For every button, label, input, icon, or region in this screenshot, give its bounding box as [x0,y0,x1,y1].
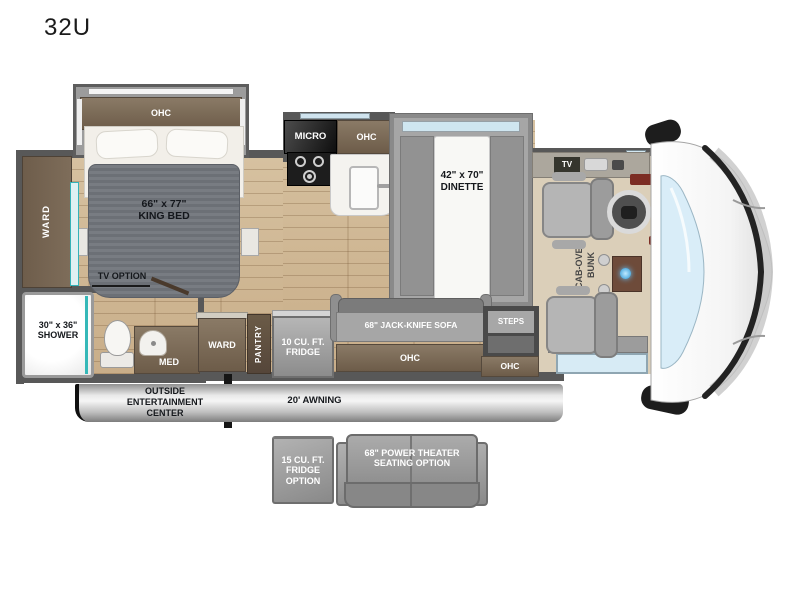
theater-option-label: 68" POWER THEATER SEATING OPTION [350,448,474,469]
theater-seat-seam [410,484,412,506]
shower-name: SHOWER [24,330,92,340]
model-title: 32U [44,14,91,42]
awning-label: 20' AWNING [262,396,367,407]
pillow-right [165,128,228,159]
bed-size: 66" x 77" [102,198,226,210]
fridge-line1: 10 CU. FT. [281,337,324,347]
tv-option-label: TV OPTION [88,271,156,281]
kitchen-sink [349,166,379,210]
oec-line2: ENTERTAINMENT [100,397,230,408]
shower-label: 30" x 36" SHOWER [24,320,92,341]
living-ward-cabinet: WARD [198,318,246,372]
nightstand-right [241,228,259,256]
fridge-line2: FRIDGE [286,347,320,357]
pillow-left [95,128,158,159]
dinette-window [402,121,520,132]
driver-armrest-top [552,172,586,181]
shower-size: 30" x 36" [24,320,92,330]
sofa-label: 68" JACK-KNIFE SOFA [340,321,482,331]
sofa-ohc-label: OHC [400,353,420,363]
king-bed-label: 66" x 77" KING BED [102,198,226,222]
kitchen-ohc-cabinet: OHC [337,120,396,154]
entry-ohc-cabinet: OHC [481,356,539,377]
driver-armrest-bottom [552,240,586,249]
fridge-option-line2: FRIDGE [286,465,320,475]
dinette-bench-left [400,136,434,296]
microwave: MICRO [284,120,337,154]
front-cap [615,58,795,423]
rv-floorplan: 32U OHC 66" x 77" KING BED WARD TV OPTIO… [0,0,800,600]
oec-line3: CENTER [100,408,230,419]
outside-entertainment-label: OUTSIDE ENTERTAINMENT CENTER [100,386,230,418]
theater-line2: SEATING OPTION [350,458,474,468]
steps-lower [488,336,534,353]
sofa-ohc-cabinet: OHC [336,344,484,372]
theater-line1: 68" POWER THEATER [350,448,474,458]
kitchen-ohc-label: OHC [357,132,377,142]
slide-wall-left [77,99,82,145]
ward-mirror [70,182,79,286]
tv-option-underline [92,285,150,287]
burner-left [295,156,306,167]
wall-top-mid [246,150,286,158]
kitchen-window [300,113,370,119]
fridge-option-line1: 15 CU. FT. [281,455,324,465]
passenger-seat [546,296,598,354]
cup-holder-top [598,254,610,266]
steps: STEPS [488,311,534,333]
dinette-bench-right [490,136,524,296]
fridge: 10 CU. FT. FRIDGE [272,316,334,378]
bedroom-ward-cabinet: WARD [22,156,72,288]
oec-line1: OUTSIDE [100,386,230,397]
overhead-vent [584,158,608,171]
dinette-size: 42" x 70" [426,170,498,182]
toilet-bowl [104,320,131,356]
bed-name: KING BED [102,210,226,222]
entry-ohc-label: OHC [501,362,520,372]
med-cabinet-label: MED [146,357,192,367]
dinette-name: DINETTE [426,182,498,194]
theater-seat [344,482,480,508]
fridge-option-line3: OPTION [286,476,321,486]
bedroom-ward-label: WARD [42,205,53,238]
passenger-armrest-top [556,286,590,295]
micro-label: MICRO [295,132,327,143]
driver-seat [542,182,594,238]
living-ward-label: WARD [208,340,236,350]
tv: TV [554,157,580,173]
bath-sink-drain [151,341,156,346]
fridge-option: 15 CU. FT. FRIDGE OPTION [272,436,334,504]
dinette-label: 42" x 70" DINETTE [426,170,498,193]
pantry-cabinet: PANTRY [247,314,271,374]
bedroom-ohc-label: OHC [151,108,171,118]
burner-right [313,156,324,167]
stove-knob-dot [307,174,312,179]
stove-knob [303,170,316,183]
tv-label: TV [562,160,572,169]
bed-slide-window [88,88,234,95]
pantry-label: PANTRY [254,325,263,363]
steps-label: STEPS [498,317,524,326]
kitchen-faucet [377,184,391,188]
